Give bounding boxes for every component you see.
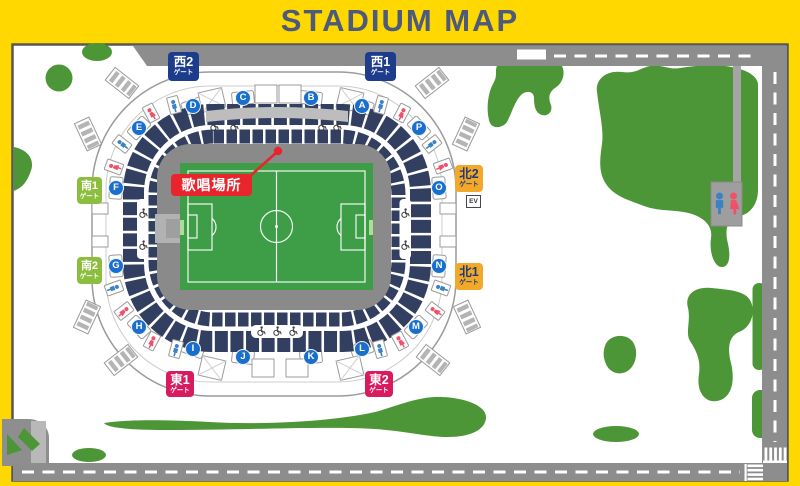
gate-name: 西1 [365, 56, 396, 69]
section-badge-d: D [185, 98, 201, 114]
section-badge-p: P [411, 120, 427, 136]
gate-name: 東2 [365, 374, 393, 387]
stadium-map-page: STADIUM MAP 西2 ゲート 西1 ゲート 北2 ゲート 北1 ゲート … [0, 0, 800, 486]
gate-suffix: ゲート [365, 387, 393, 395]
section-badge-g: G [108, 258, 124, 274]
gate-suffix: ゲート [166, 387, 194, 395]
section-badge-o: O [431, 180, 447, 196]
gate-suffix: ゲート [77, 193, 102, 201]
section-badge-f: F [108, 180, 124, 196]
elevator-label: EV [466, 195, 481, 208]
section-badge-j: J [235, 349, 251, 365]
gate-east-2: 東2 ゲート [365, 371, 393, 397]
gate-suffix: ゲート [77, 273, 102, 281]
section-badge-n: N [431, 258, 447, 274]
gate-south-1: 南1 ゲート [77, 177, 102, 204]
gate-name: 南2 [77, 260, 102, 273]
gate-suffix: ゲート [365, 69, 396, 77]
section-badge-k: K [303, 349, 319, 365]
gate-suffix: ゲート [455, 181, 483, 189]
section-badge-c: C [235, 90, 251, 106]
gate-west-2: 西2 ゲート [168, 52, 199, 81]
section-badge-a: A [354, 98, 370, 114]
section-badge-m: M [408, 319, 424, 335]
gate-name: 北1 [455, 266, 483, 279]
section-badge-e: E [131, 120, 147, 136]
gate-suffix: ゲート [455, 279, 483, 287]
gate-name: 南1 [77, 180, 102, 193]
gate-suffix: ゲート [168, 69, 199, 77]
section-badge-h: H [131, 319, 147, 335]
section-badge-i: I [185, 341, 201, 357]
gate-south-2: 南2 ゲート [77, 257, 102, 284]
section-badge-b: B [303, 90, 319, 106]
singing-spot-label: 歌唱場所 [171, 174, 252, 196]
gate-name: 北2 [455, 168, 483, 181]
gate-north-2: 北2 ゲート [455, 165, 483, 192]
gate-west-1: 西1 ゲート [365, 52, 396, 81]
section-badge-l: L [354, 341, 370, 357]
gate-north-1: 北1 ゲート [455, 263, 483, 290]
gate-name: 東1 [166, 374, 194, 387]
page-title: STADIUM MAP [0, 0, 800, 44]
gate-name: 西2 [168, 56, 199, 69]
gate-east-1: 東1 ゲート [166, 371, 194, 397]
labels-overlay: STADIUM MAP 西2 ゲート 西1 ゲート 北2 ゲート 北1 ゲート … [0, 0, 800, 486]
